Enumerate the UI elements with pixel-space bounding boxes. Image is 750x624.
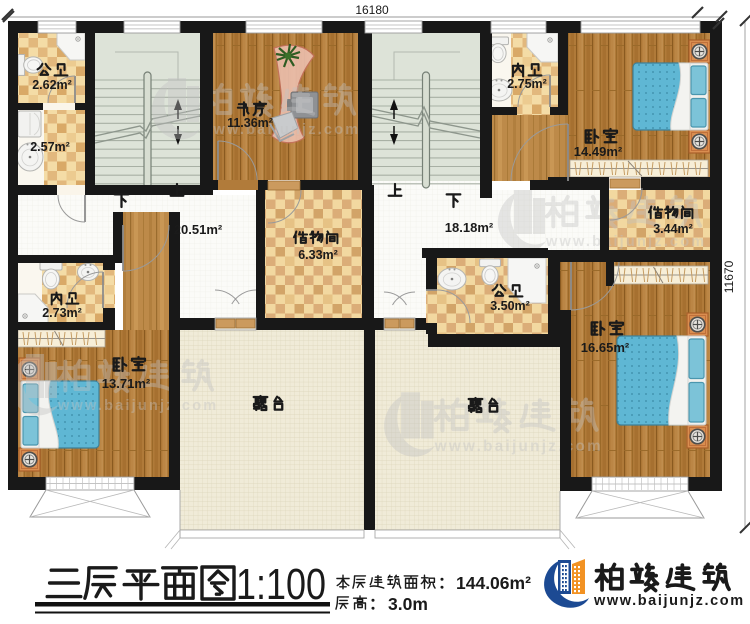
svg-text:：: ： [438,575,454,592]
svg-text:16180: 16180 [355,3,389,17]
svg-text:3.44m²: 3.44m² [653,222,693,236]
svg-text:11670: 11670 [722,260,736,293]
svg-text:3.50m²: 3.50m² [490,299,530,313]
svg-text:18.18m²: 18.18m² [445,220,494,235]
svg-text:1:100: 1:100 [236,560,326,609]
svg-text:www.baijunjz.com: www.baijunjz.com [434,438,603,455]
svg-text:www.baijunjz.com: www.baijunjz.com [199,122,360,138]
svg-text:11.36m²: 11.36m² [227,116,273,130]
svg-text:：: ： [369,596,385,613]
svg-text:144.06m²: 144.06m² [456,573,531,593]
svg-text:2.73m²: 2.73m² [42,306,82,320]
svg-text:13.71m²: 13.71m² [102,376,151,391]
svg-text:www.baijunjz.com: www.baijunjz.com [57,398,218,414]
svg-text:www.baijunjz.com: www.baijunjz.com [593,593,745,609]
svg-text:6.33m²: 6.33m² [298,248,338,262]
svg-text:2.57m²: 2.57m² [30,140,70,154]
svg-text:3.0m: 3.0m [388,594,428,614]
svg-text:16.65m²: 16.65m² [581,340,630,355]
svg-text:20.51m²: 20.51m² [174,222,223,237]
svg-text:2.75m²: 2.75m² [507,77,547,91]
svg-text:www.baijunjz.com: www.baijunjz.com [545,234,706,250]
svg-text:14.49m²: 14.49m² [574,144,623,159]
svg-text:2.62m²: 2.62m² [32,78,72,92]
